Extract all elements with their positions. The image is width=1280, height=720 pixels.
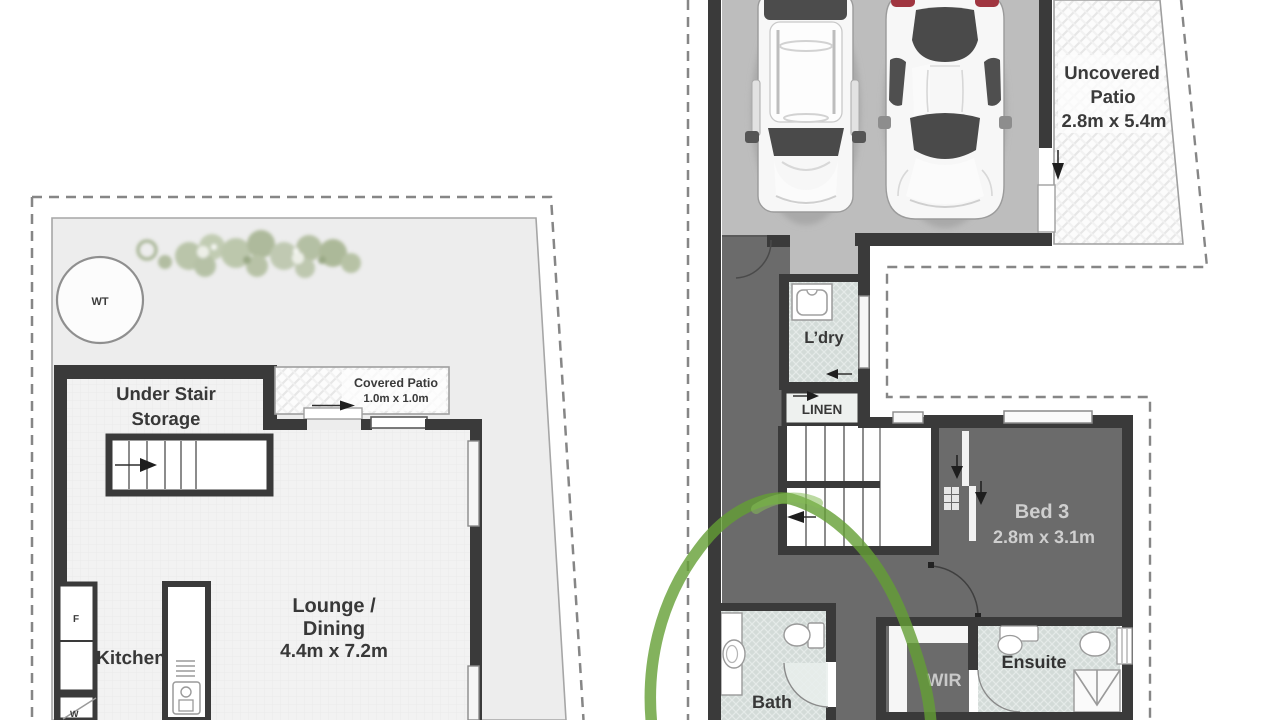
- svg-text:2.8m x 5.4m: 2.8m x 5.4m: [1062, 110, 1167, 131]
- svg-text:LINEN: LINEN: [802, 402, 843, 417]
- svg-text:1.0m x 1.0m: 1.0m x 1.0m: [363, 393, 428, 405]
- svg-text:Covered Patio: Covered Patio: [354, 376, 438, 390]
- svg-text:Under Stair: Under Stair: [116, 383, 216, 404]
- svg-text:Lounge /: Lounge /: [292, 595, 376, 617]
- svg-text:Patio: Patio: [1090, 86, 1135, 107]
- svg-text:L’dry: L’dry: [804, 329, 844, 347]
- svg-text:Bed 3: Bed 3: [1015, 501, 1069, 523]
- svg-text:Bath: Bath: [752, 692, 792, 712]
- svg-text:Kitchen: Kitchen: [96, 648, 166, 669]
- svg-text:4.4m x 7.2m: 4.4m x 7.2m: [280, 641, 388, 662]
- svg-text:Dining: Dining: [303, 618, 365, 640]
- svg-text:WT: WT: [91, 296, 108, 308]
- svg-text:W: W: [70, 709, 79, 719]
- svg-text:F: F: [73, 614, 79, 625]
- svg-text:2.8m x 3.1m: 2.8m x 3.1m: [993, 527, 1095, 547]
- svg-text:Uncovered: Uncovered: [1064, 62, 1160, 83]
- svg-text:Storage: Storage: [132, 408, 201, 429]
- svg-text:WIR: WIR: [927, 670, 962, 690]
- svg-text:Ensuite: Ensuite: [1001, 652, 1066, 672]
